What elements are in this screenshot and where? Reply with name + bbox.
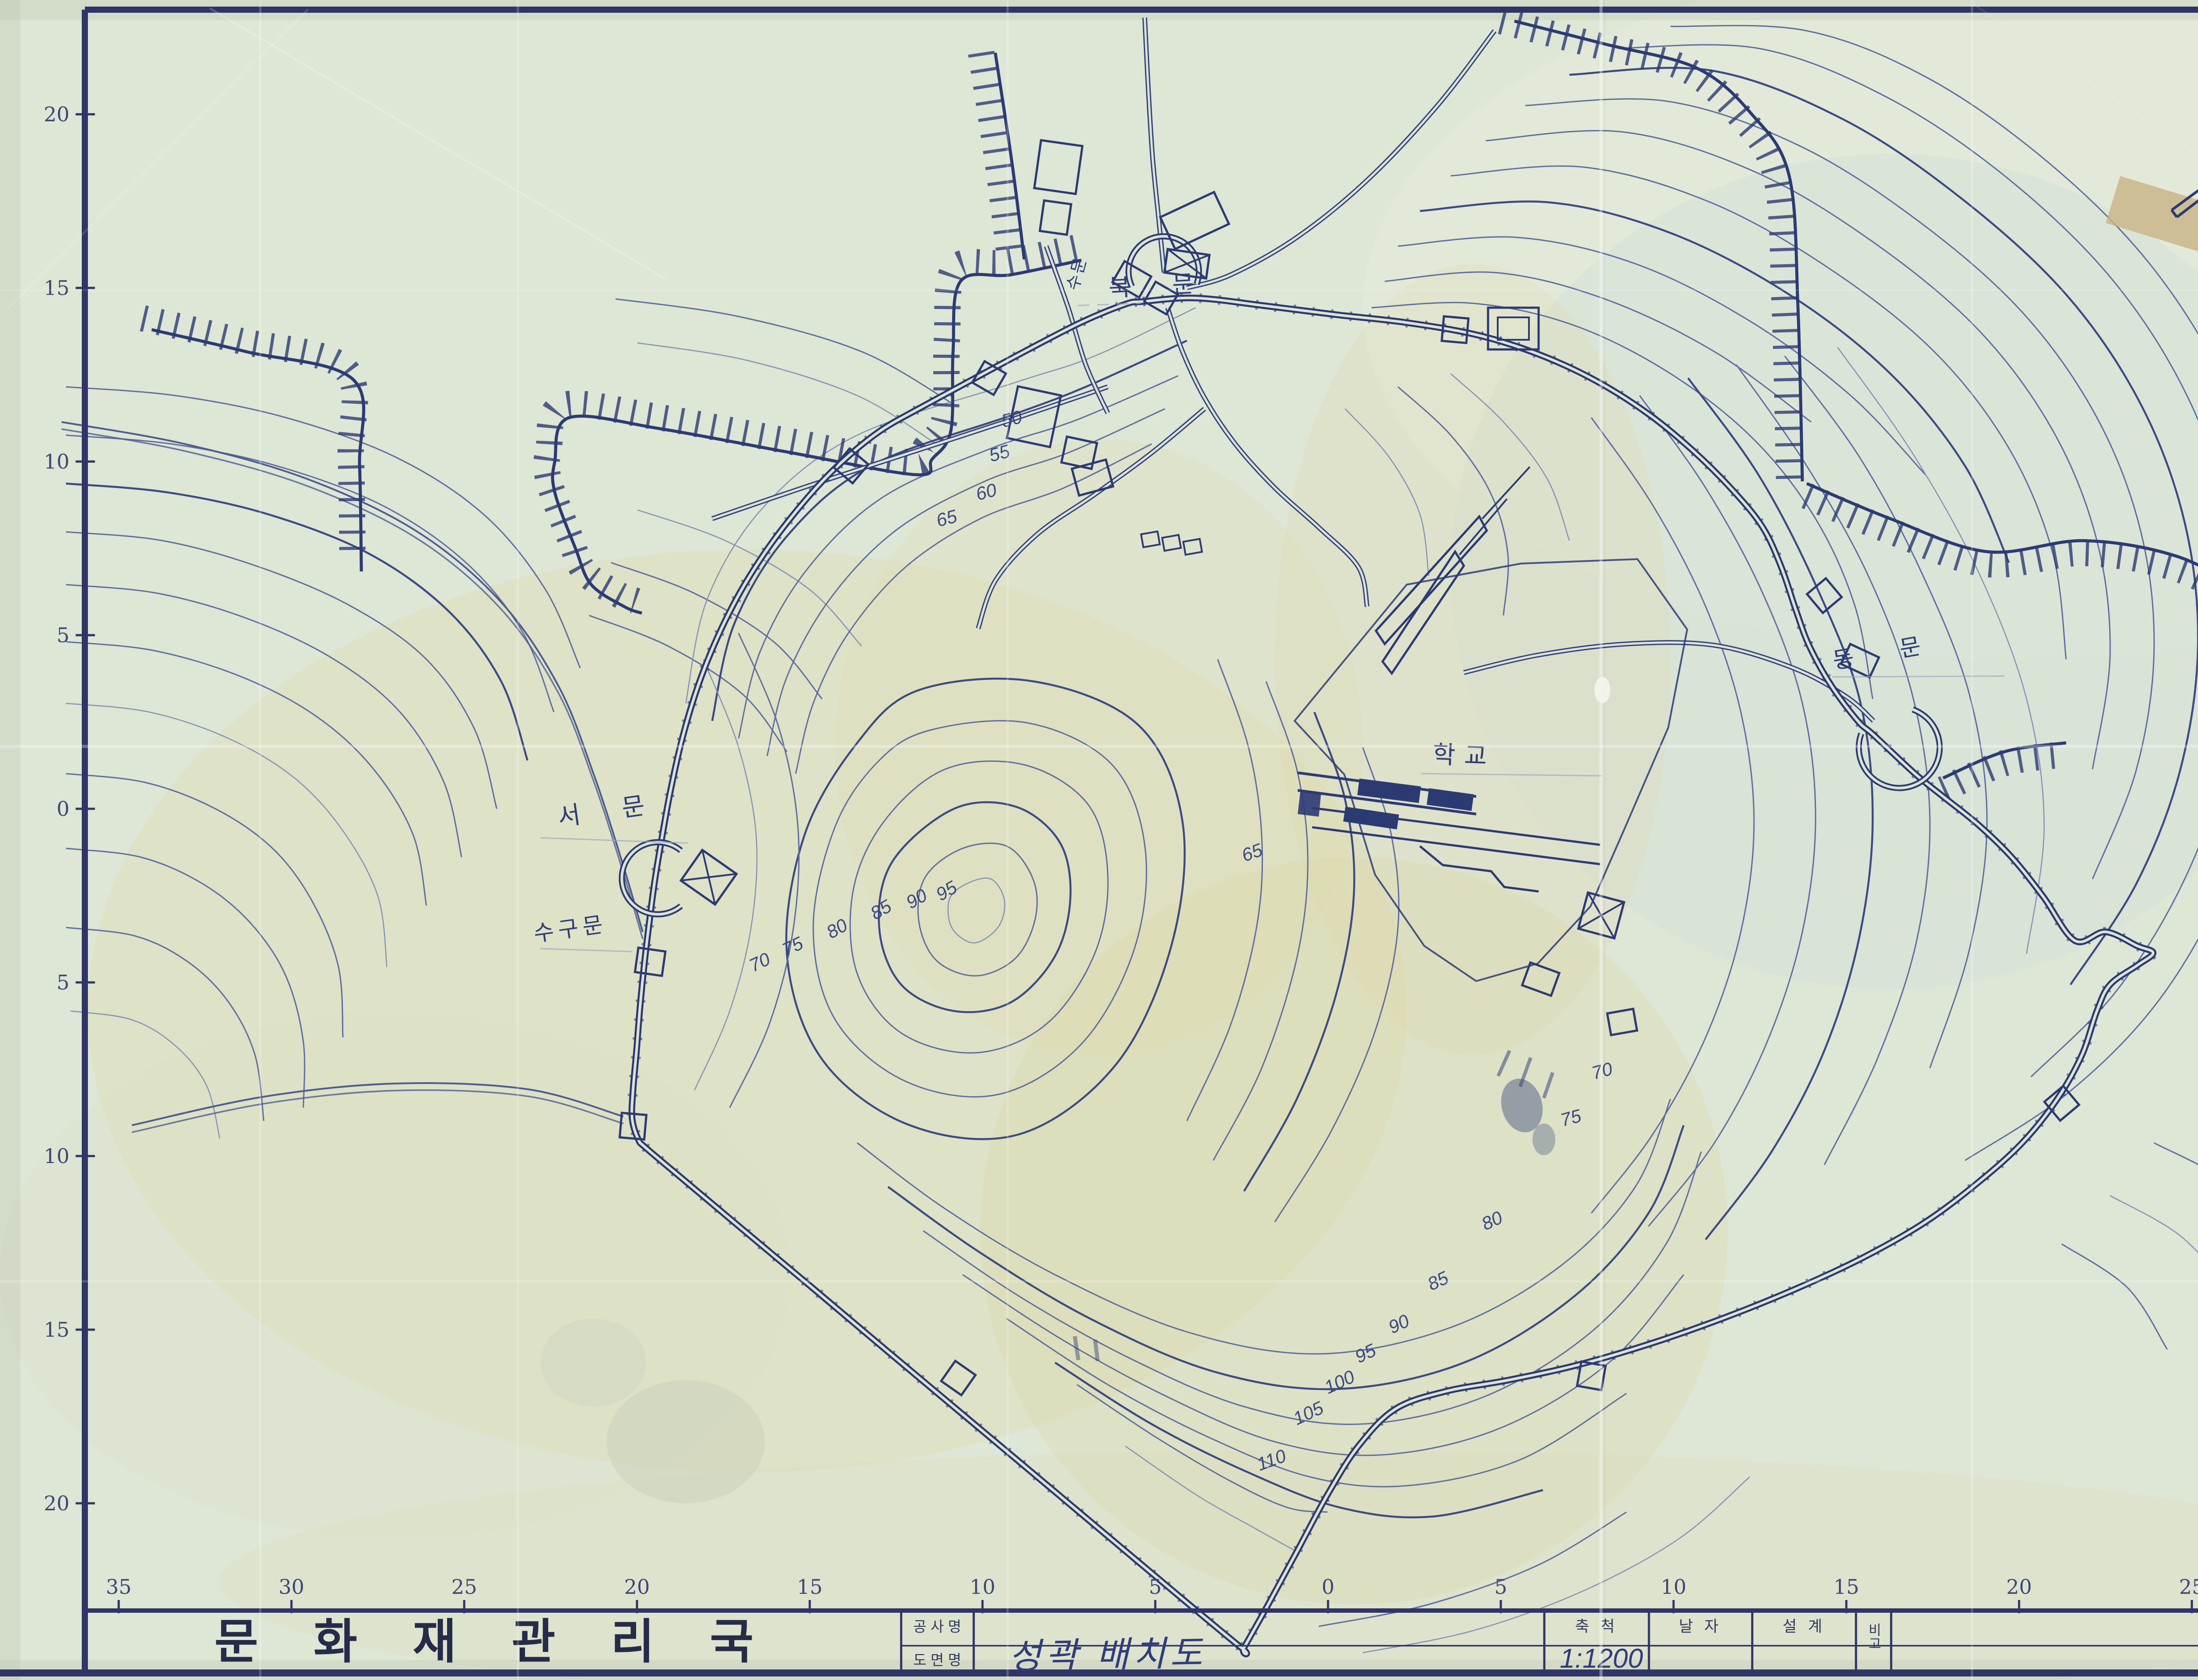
paper-flaw bbox=[1594, 677, 1610, 703]
ruler-number: 10 bbox=[44, 450, 69, 473]
ruler-number: 35 bbox=[106, 1575, 132, 1599]
ruler-number: 20 bbox=[44, 102, 69, 126]
ruler-number: 20 bbox=[2006, 1575, 2032, 1599]
designer-label: 설 계 bbox=[1783, 1618, 1826, 1635]
ruler-number: 15 bbox=[1834, 1575, 1860, 1599]
date-label: 날 자 bbox=[1679, 1618, 1722, 1635]
ruler-number: 20 bbox=[44, 1491, 69, 1515]
ruler-number: 10 bbox=[1661, 1575, 1687, 1599]
drawing-name-value: 성곽 배치도 bbox=[1008, 1633, 1207, 1676]
project-name-label: 공 사 명 bbox=[913, 1618, 961, 1635]
fortress-plan-map: 5055606565707580859095707580859095100105… bbox=[0, 0, 2198, 1680]
ruler-number: 15 bbox=[797, 1575, 823, 1599]
ruler-number: 0 bbox=[1321, 1575, 1334, 1599]
remarks-label: 비고 bbox=[1866, 1623, 1881, 1650]
agency-title: 문 화 재 관 리 국 bbox=[215, 1615, 775, 1668]
ruler-number: 5 bbox=[57, 623, 69, 647]
ruler-number: 15 bbox=[44, 276, 69, 300]
ruler-number: 10 bbox=[44, 1144, 69, 1168]
ruler-number: 10 bbox=[970, 1575, 996, 1599]
north-gate-label: 북 문 bbox=[1108, 270, 1212, 302]
ruler-number: 30 bbox=[279, 1575, 305, 1599]
ruler-number: 5 bbox=[1149, 1575, 1161, 1599]
ruler-number: 20 bbox=[624, 1575, 650, 1599]
drawing-name-label: 도 면 명 bbox=[913, 1652, 961, 1668]
drawing-sheet: 5055606565707580859095707580859095100105… bbox=[0, 0, 2198, 1680]
paper-background bbox=[0, 0, 2198, 1680]
ruler-number: 25 bbox=[451, 1575, 477, 1599]
ruler-number: 5 bbox=[1494, 1575, 1507, 1599]
ruler-number: 15 bbox=[44, 1318, 69, 1342]
scale-label: 축 척 bbox=[1575, 1618, 1618, 1635]
ruler-number: 25 bbox=[2179, 1575, 2198, 1599]
ruler-number: 5 bbox=[57, 971, 69, 994]
ruler-number: 0 bbox=[57, 797, 69, 821]
